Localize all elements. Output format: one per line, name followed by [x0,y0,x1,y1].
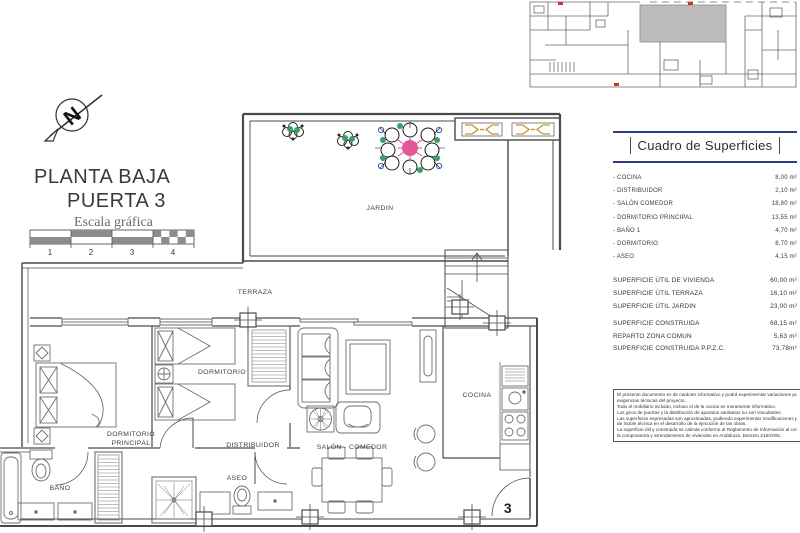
toilet-bano [30,450,52,481]
label-distribuidor: DISTRIBUIDOR [226,442,280,449]
surface-row: - ASEO4,15 m² [613,251,797,264]
disclaimer-line: El presente documento es de carácter inf… [617,392,797,398]
summary-value: 73,78m² [772,343,797,356]
summary-label: SUPERFICIE ÚTIL TERRAZA [613,288,703,301]
label-aseo: ASEO [227,475,248,482]
door-number: 3 [504,500,512,516]
furniture [1,326,530,523]
columns [190,294,511,532]
label-jardin: JARDIN [367,205,394,212]
summary-value: 16,10 m² [770,288,797,301]
shower [152,477,196,523]
summary-label: SUPERFICIE CONSTRUIDA P.P.Z.C. [613,343,725,356]
scale-tick-2: 2 [89,248,94,257]
surface-row: - SALÓN COMEDOR18,80 m² [613,198,797,211]
surfaces-useful-rows: SUPERFICIE ÚTIL DE VIVIENDA60,00 m² SUPE… [613,275,797,313]
label-bano: BAÑO [50,483,71,492]
surface-row-value: 8,70 m² [775,238,797,251]
flower-bed-icon [375,122,445,174]
label-salon: SALÓN - COMEDOR [317,442,388,451]
label-dormitorio-principal-2: PRINCIPAL [112,440,151,447]
surface-row-value: 4,70 m² [775,225,797,238]
surface-row-label: - SALÓN COMEDOR [613,198,673,211]
closet-hatched [95,452,122,523]
surface-summary-row: SUPERFICIE CONSTRUIDA P.P.Z.C.73,78m² [613,343,797,356]
surfaces-built-rows: SUPERFICIE CONSTRUIDA68,15 m² REPARTO ZO… [613,318,797,356]
surface-row: - DISTRIBUIDOR2,10 m² [613,185,797,198]
louver-glyphs [465,125,550,134]
garden-plants [283,122,446,174]
surfaces-panel-header: Cuadro de Superficies [613,131,797,163]
door-arcs [55,390,290,485]
summary-label: REPARTO ZONA COMUN [613,331,692,344]
surface-row-value: 13,55 m² [772,212,797,225]
toilet-aseo [233,486,251,514]
scale-caption: Escala gráfica [74,215,254,231]
coffee-table [346,340,390,394]
disclaimer-line: la compraventa y arrendamiento de vivien… [617,433,797,439]
label-dormitorio-principal-1: DORMITORIO [107,431,155,438]
scale-tick-3: 3 [130,248,135,257]
plan-title-line2: PUERTA 3 [67,190,254,213]
wardrobe-hatched [248,326,290,386]
double-bed [34,345,116,444]
sideboard [420,330,436,382]
surface-row-label: - DORMITORIO [613,238,658,251]
surface-row: - BAÑO 14,70 m² [613,225,797,238]
stools [414,425,435,471]
plan-title-line1: PLANTA BAJA [34,166,254,189]
surface-row-label: - ASEO [613,251,634,264]
scale-tick-4: 4 [171,248,176,257]
surface-row: - DORMITORIO PRINCIPAL13,55 m² [613,212,797,225]
armchair [336,402,380,433]
surface-row-label: - DORMITORIO PRINCIPAL [613,212,693,225]
surface-row-value: 4,15 m² [775,251,797,264]
surface-summary-row: REPARTO ZONA COMUN5,63 m² [613,331,797,344]
washer [200,492,230,514]
surface-row-label: - COCINA [613,172,642,185]
surface-row-value: 2,10 m² [775,185,797,198]
title-block: PLANTA BAJA PUERTA 3 Escala gráfica [34,166,254,231]
surface-row-value: 18,80 m² [772,198,797,211]
disclaimer-line: Todo el mobiliario incluido, incluso el … [617,404,797,410]
label-dormitorio: DORMITORIO [198,369,246,376]
surfaces-panel: Cuadro de Superficies - COCINA8,00 m² - … [613,131,797,356]
summary-value: 68,15 m² [770,318,797,331]
summary-value: 60,00 m² [770,275,797,288]
surface-row-value: 8,00 m² [775,172,797,185]
surface-summary-row: SUPERFICIE ÚTIL JARDIN23,00 m² [613,301,797,314]
surface-summary-row: SUPERFICIE CONSTRUIDA68,15 m² [613,318,797,331]
legal-disclaimer: El presente documento es de carácter inf… [613,389,800,442]
kitchen-appliances [500,362,530,470]
summary-label: SUPERFICIE ÚTIL DE VIVIENDA [613,275,714,288]
label-terraza: TERRAZA [238,289,273,296]
surface-summary-row: SUPERFICIE ÚTIL TERRAZA16,10 m² [613,288,797,301]
scale-tick-1: 1 [48,248,53,257]
scale-bar: 1 2 3 4 [30,230,194,257]
surface-row-label: - BAÑO 1 [613,225,640,238]
fan-table [307,406,334,432]
summary-value: 5,63 m² [774,331,797,344]
site-plan [530,2,796,87]
surface-summary-row: SUPERFICIE ÚTIL DE VIVIENDA60,00 m² [613,275,797,288]
dining-set [312,447,392,513]
surface-row: - COCINA8,00 m² [613,172,797,185]
summary-value: 23,00 m² [770,301,797,314]
surface-row: - DORMITORIO8,70 m² [613,238,797,251]
sofa [298,328,338,408]
surfaces-room-rows: - COCINA8,00 m² - DISTRIBUIDOR2,10 m² - … [613,172,797,264]
north-arrow-icon: N [45,95,102,141]
label-cocina: COCINA [463,392,492,399]
surface-row-label: - DISTRIBUIDOR [613,185,662,198]
summary-label: SUPERFICIE CONSTRUIDA [613,318,700,331]
disclaimer-line: Los giros de puertas y la distribución d… [617,410,797,416]
summary-label: SUPERFICIE ÚTIL JARDIN [613,301,696,314]
vanity-bano [18,503,92,520]
sink-aseo [258,492,292,510]
surfaces-panel-title: Cuadro de Superficies [630,137,781,154]
